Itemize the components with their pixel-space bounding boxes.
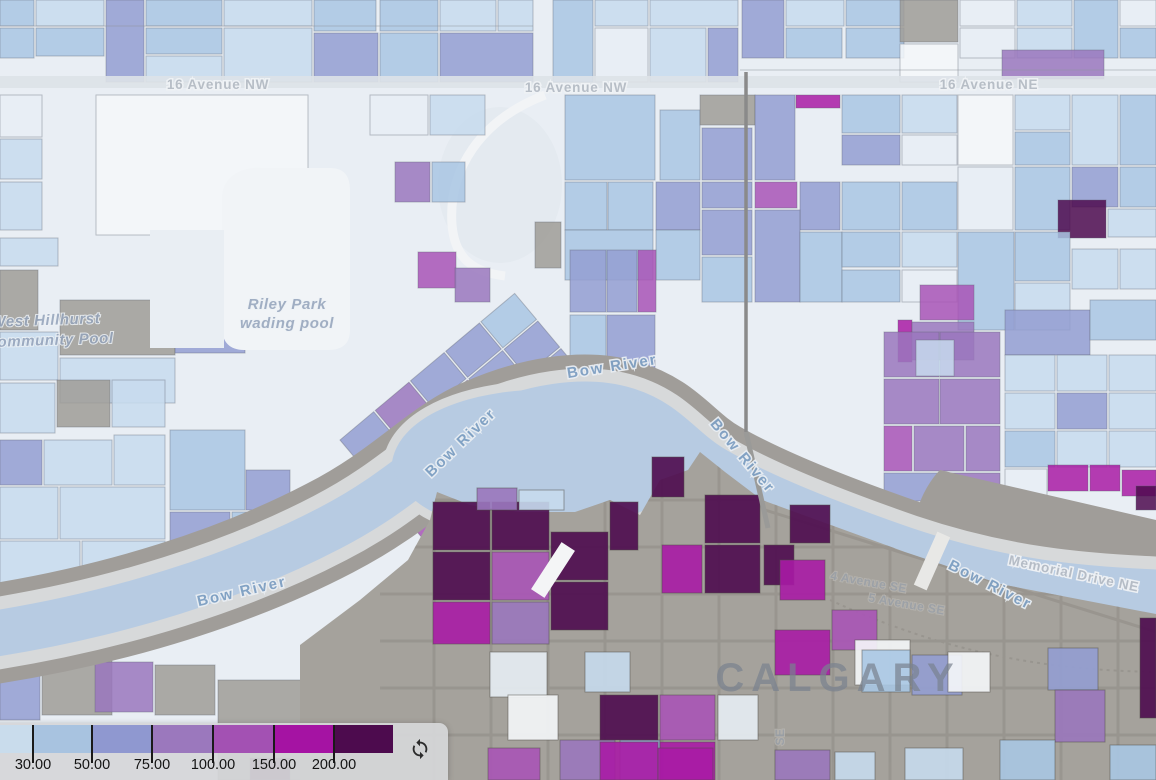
choropleth-block[interactable] [960, 0, 1015, 26]
choropleth-block[interactable] [0, 383, 55, 433]
choropleth-block[interactable] [477, 488, 517, 510]
choropleth-block[interactable] [553, 0, 593, 82]
legend-swatch [274, 725, 334, 753]
choropleth-block[interactable] [902, 135, 957, 165]
choropleth-block[interactable] [488, 748, 540, 780]
choropleth-block[interactable] [95, 662, 153, 712]
choropleth-block[interactable] [755, 95, 795, 180]
choropleth-block[interactable] [433, 602, 490, 644]
choropleth-block[interactable] [0, 28, 34, 58]
choropleth-block[interactable] [920, 285, 974, 320]
legend-tick-label: 75.00 [124, 757, 180, 773]
choropleth-block[interactable] [718, 695, 758, 740]
choropleth-block[interactable] [0, 238, 58, 266]
map-label-roadsm: SE [773, 728, 787, 745]
choropleth-block[interactable] [1140, 618, 1156, 718]
legend-tick-label: 30.00 [5, 757, 61, 773]
choropleth-block[interactable] [652, 457, 684, 497]
choropleth-block[interactable] [1109, 355, 1156, 391]
choropleth-block[interactable] [786, 28, 842, 58]
choropleth-block[interactable] [1055, 690, 1105, 742]
choropleth-block[interactable] [842, 182, 900, 230]
choropleth-block[interactable] [595, 28, 648, 82]
choropleth-block[interactable] [600, 742, 658, 780]
choropleth-block[interactable] [106, 0, 144, 82]
choropleth-block[interactable] [656, 230, 700, 280]
choropleth-block[interactable] [958, 167, 1013, 230]
legend-swatch [213, 725, 274, 753]
choropleth-block[interactable] [800, 232, 842, 302]
choropleth-block[interactable] [0, 440, 42, 485]
choropleth-block[interactable] [112, 380, 165, 427]
choropleth-block[interactable] [146, 0, 222, 26]
choropleth-block[interactable] [884, 379, 939, 424]
choropleth-block[interactable] [1005, 355, 1055, 391]
map-app: 16 Avenue NW16 Avenue NW16 Avenue NERile… [0, 0, 1156, 780]
choropleth-block[interactable] [60, 487, 165, 539]
choropleth-block[interactable] [146, 28, 222, 54]
choropleth-block[interactable] [1002, 50, 1104, 79]
choropleth-block[interactable] [842, 95, 900, 133]
choropleth-block[interactable] [705, 495, 760, 543]
choropleth-block[interactable] [775, 750, 830, 780]
choropleth-block[interactable] [519, 490, 564, 510]
legend-refresh-button[interactable] [403, 733, 437, 767]
choropleth-block[interactable] [1136, 486, 1156, 510]
choropleth-block[interactable] [490, 652, 547, 697]
choropleth-block[interactable] [430, 95, 485, 135]
choropleth-block[interactable] [1057, 355, 1107, 391]
choropleth-block[interactable] [650, 28, 706, 82]
choropleth-block[interactable] [1109, 431, 1156, 467]
choropleth-block[interactable] [170, 430, 245, 510]
choropleth-block[interactable] [916, 340, 954, 376]
map-canvas[interactable]: 16 Avenue NW16 Avenue NW16 Avenue NERile… [0, 0, 1156, 780]
choropleth-block[interactable] [884, 426, 912, 471]
choropleth-block[interactable] [842, 232, 900, 267]
legend-tick-label: 200.00 [306, 757, 362, 773]
choropleth-block[interactable] [1015, 132, 1070, 165]
choropleth-block[interactable] [662, 545, 702, 593]
choropleth-block[interactable] [1048, 465, 1088, 491]
choropleth-block[interactable] [940, 379, 1000, 424]
legend-swatch [152, 725, 213, 753]
choropleth-block[interactable] [224, 28, 312, 82]
choropleth-block[interactable] [1090, 300, 1156, 340]
choropleth-block[interactable] [658, 748, 713, 780]
choropleth-block[interactable] [114, 435, 165, 485]
choropleth-block[interactable] [610, 502, 638, 550]
choropleth-block[interactable] [900, 0, 958, 42]
choropleth-block[interactable] [796, 95, 840, 108]
legend-swatch [33, 725, 92, 753]
choropleth-block[interactable] [1005, 431, 1055, 467]
choropleth-block[interactable] [1000, 740, 1055, 780]
choropleth-block[interactable] [742, 0, 784, 58]
legend-swatch [334, 725, 393, 753]
choropleth-block[interactable] [1072, 249, 1118, 289]
choropleth-block[interactable] [958, 95, 1013, 165]
choropleth-block[interactable] [1015, 232, 1070, 281]
choropleth-block[interactable] [600, 695, 658, 740]
choropleth-block[interactable] [395, 162, 430, 202]
choropleth-block[interactable] [570, 250, 606, 312]
choropleth-block[interactable] [660, 110, 700, 180]
choropleth-block[interactable] [1110, 745, 1156, 780]
choropleth-block[interactable] [595, 0, 648, 26]
choropleth-block[interactable] [902, 182, 957, 230]
park-area [150, 230, 224, 348]
choropleth-block[interactable] [902, 232, 957, 267]
map-label-city: CALGARY [715, 656, 960, 700]
choropleth-block[interactable] [565, 95, 655, 180]
choropleth-block[interactable] [1120, 28, 1156, 58]
choropleth-block[interactable] [36, 28, 104, 56]
choropleth-block[interactable] [1048, 648, 1098, 690]
choropleth-block[interactable] [0, 139, 42, 179]
choropleth-block[interactable] [846, 28, 904, 58]
choropleth-block[interactable] [57, 380, 110, 427]
legend-tick-label: 100.00 [185, 757, 241, 773]
choropleth-block[interactable] [905, 748, 963, 780]
sync-refresh-icon [409, 738, 431, 760]
choropleth-block[interactable] [650, 0, 738, 26]
choropleth-block[interactable] [1072, 95, 1118, 165]
choropleth-block[interactable] [0, 95, 42, 137]
choropleth-block[interactable] [535, 222, 561, 268]
choropleth-block[interactable] [755, 210, 800, 302]
choropleth-block[interactable] [755, 182, 797, 208]
choropleth-block[interactable] [842, 270, 900, 302]
choropleth-block[interactable] [800, 182, 840, 230]
choropleth-block[interactable] [902, 95, 957, 133]
choropleth-block[interactable] [656, 182, 700, 230]
choropleth-block[interactable] [1005, 310, 1090, 355]
choropleth-block[interactable] [1074, 0, 1118, 58]
choropleth-block[interactable] [1120, 167, 1156, 207]
choropleth-block[interactable] [842, 135, 900, 165]
choropleth-block[interactable] [1090, 465, 1120, 491]
choropleth-block[interactable] [224, 0, 312, 26]
choropleth-block[interactable] [1017, 0, 1072, 26]
choropleth-block[interactable] [708, 28, 738, 82]
choropleth-block[interactable] [1057, 431, 1107, 467]
choropleth-block[interactable] [835, 752, 875, 780]
choropleth-block[interactable] [492, 602, 549, 644]
choropleth-block[interactable] [1015, 95, 1070, 130]
choropleth-block[interactable] [608, 182, 653, 230]
choropleth-block[interactable] [0, 487, 58, 539]
choropleth-block[interactable] [607, 250, 637, 312]
choropleth-block[interactable] [433, 552, 490, 600]
choropleth-block[interactable] [1120, 0, 1156, 26]
choropleth-block[interactable] [914, 426, 964, 471]
choropleth-block[interactable] [1120, 249, 1156, 289]
choropleth-block[interactable] [0, 182, 42, 230]
choropleth-block[interactable] [846, 0, 904, 26]
choropleth-block[interactable] [585, 652, 630, 692]
map-label-road: 16 Avenue NW [167, 77, 269, 92]
choropleth-block[interactable] [1057, 393, 1107, 429]
map-legend: 30.0050.0075.00100.00150.00200.00 [0, 723, 448, 780]
legend-tick-label: 150.00 [246, 757, 302, 773]
choropleth-block[interactable] [1108, 209, 1156, 237]
map-label-road: 16 Avenue NW [525, 80, 627, 95]
choropleth-block[interactable] [705, 545, 760, 593]
choropleth-block[interactable] [36, 0, 104, 26]
legend-tick-label: 50.00 [64, 757, 120, 773]
choropleth-block[interactable] [565, 182, 607, 230]
choropleth-block[interactable] [440, 33, 533, 82]
choropleth-block[interactable] [1109, 393, 1156, 429]
choropleth-block[interactable] [155, 665, 215, 715]
choropleth-block[interactable] [380, 33, 438, 82]
choropleth-block[interactable] [638, 250, 656, 312]
map-label-road: 16 Avenue NE [940, 77, 1039, 92]
legend-swatch [92, 725, 152, 753]
legend-swatch [0, 725, 33, 753]
choropleth-block[interactable] [790, 505, 830, 543]
choropleth-block[interactable] [1005, 393, 1055, 429]
choropleth-block[interactable] [455, 268, 490, 302]
choropleth-block[interactable] [44, 440, 112, 485]
choropleth-block[interactable] [660, 695, 715, 740]
map-label-poi: wading pool [240, 315, 334, 332]
choropleth-block[interactable] [551, 582, 608, 630]
choropleth-block[interactable] [432, 162, 465, 202]
choropleth-block[interactable] [966, 426, 1000, 471]
map-label-poi: Riley Park [248, 296, 327, 313]
choropleth-block[interactable] [1120, 95, 1156, 165]
choropleth-block[interactable] [314, 33, 378, 82]
choropleth-block[interactable] [780, 560, 825, 600]
choropleth-block[interactable] [508, 695, 558, 740]
choropleth-block[interactable] [0, 0, 34, 26]
choropleth-block[interactable] [786, 0, 844, 26]
choropleth-block[interactable] [418, 252, 456, 288]
choropleth-block[interactable] [370, 95, 428, 135]
